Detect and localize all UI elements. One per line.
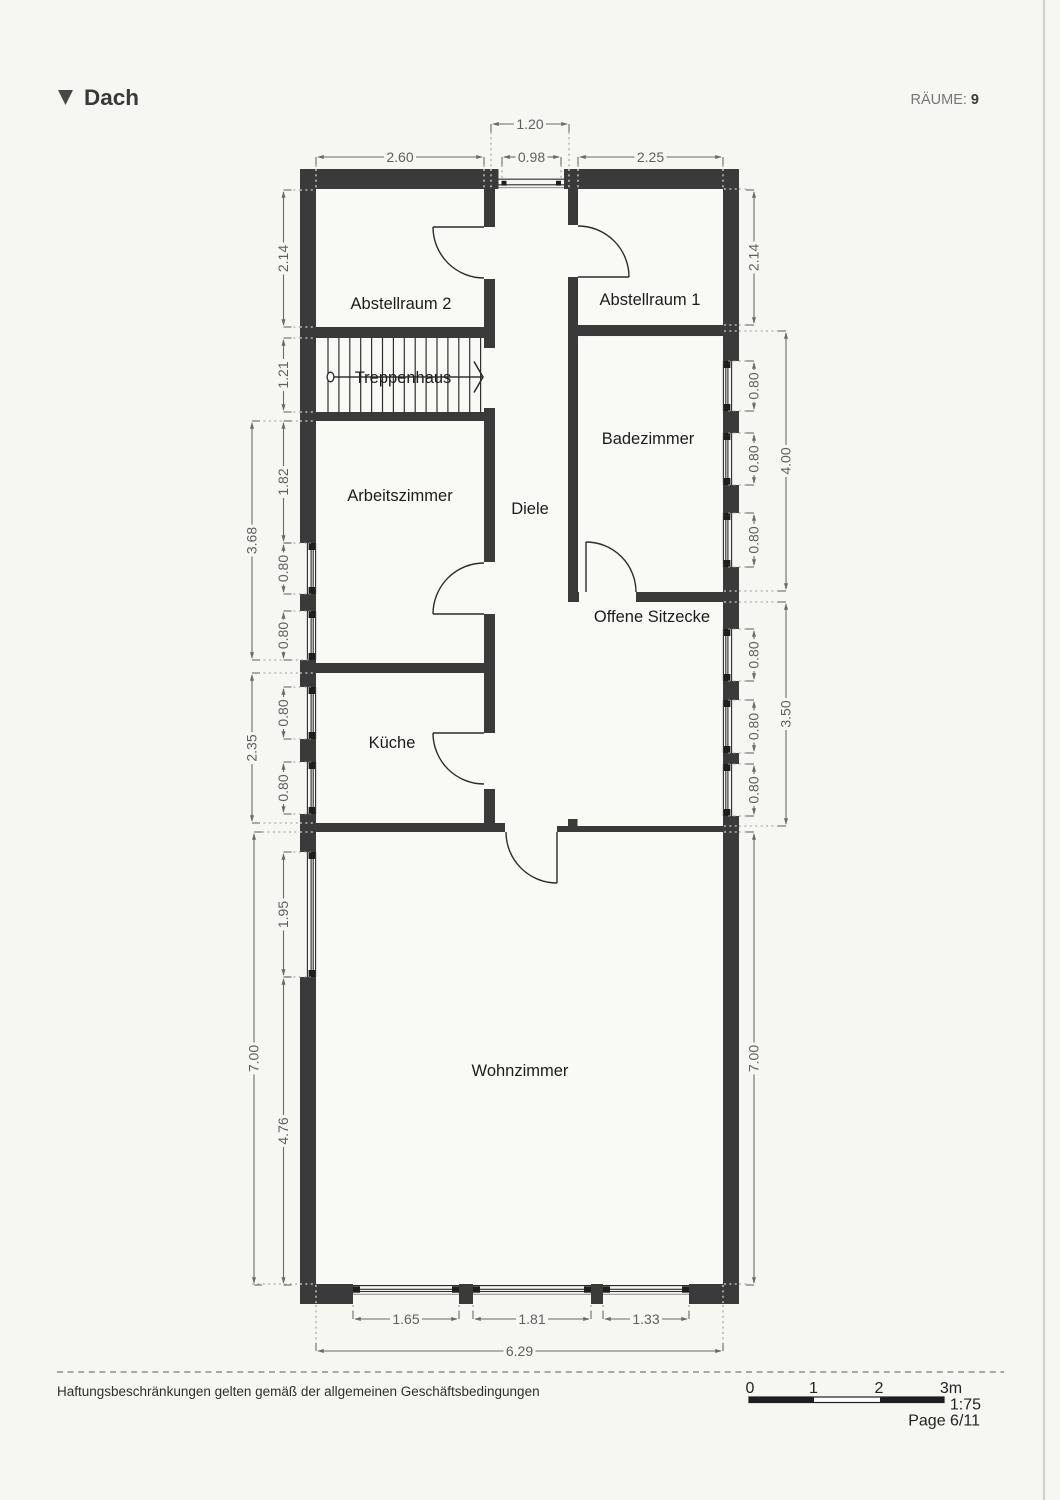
svg-text:6.29: 6.29 <box>506 1343 533 1359</box>
svg-text:Page 6/11: Page 6/11 <box>908 1413 980 1430</box>
svg-text:3.50: 3.50 <box>778 700 794 727</box>
svg-text:1.33: 1.33 <box>632 1311 659 1327</box>
svg-text:Haftungsbeschränkungen gelten: Haftungsbeschränkungen gelten gemäß der … <box>57 1384 540 1399</box>
svg-text:Abstellraum 2: Abstellraum 2 <box>351 295 452 313</box>
svg-text:Treppenhaus: Treppenhaus <box>355 369 452 387</box>
svg-text:Diele: Diele <box>511 500 549 518</box>
svg-text:0.80: 0.80 <box>275 555 291 582</box>
svg-text:4.76: 4.76 <box>275 1117 291 1144</box>
svg-text:0.80: 0.80 <box>746 526 762 553</box>
svg-text:3m: 3m <box>940 1380 962 1397</box>
svg-text:0.98: 0.98 <box>518 149 545 165</box>
svg-text:2.25: 2.25 <box>637 149 664 165</box>
svg-text:3.68: 3.68 <box>244 527 260 554</box>
svg-text:Wohnzimmer: Wohnzimmer <box>472 1062 569 1080</box>
svg-text:Offene Sitzecke: Offene Sitzecke <box>594 608 710 626</box>
svg-text:1.65: 1.65 <box>392 1311 419 1327</box>
svg-text:2.60: 2.60 <box>386 149 413 165</box>
svg-text:2.35: 2.35 <box>244 734 260 761</box>
svg-text:0.80: 0.80 <box>746 641 762 668</box>
svg-text:1.82: 1.82 <box>275 468 291 495</box>
svg-text:Küche: Küche <box>369 734 416 752</box>
svg-text:Badezimmer: Badezimmer <box>602 430 695 448</box>
svg-text:0.80: 0.80 <box>746 713 762 740</box>
svg-text:Arbeitszimmer: Arbeitszimmer <box>347 487 453 505</box>
svg-text:2.14: 2.14 <box>275 245 291 272</box>
svg-text:1.20: 1.20 <box>516 116 543 132</box>
svg-text:0.80: 0.80 <box>746 372 762 399</box>
svg-text:1:75: 1:75 <box>950 1397 981 1414</box>
svg-text:Abstellraum 1: Abstellraum 1 <box>600 291 701 309</box>
svg-text:0: 0 <box>746 1380 755 1397</box>
svg-text:0.80: 0.80 <box>275 774 291 801</box>
svg-text:1.81: 1.81 <box>518 1311 545 1327</box>
svg-text:RÄUME: 9: RÄUME: 9 <box>911 91 980 108</box>
svg-text:7.00: 7.00 <box>246 1045 262 1072</box>
svg-text:0.80: 0.80 <box>275 622 291 649</box>
svg-text:0.80: 0.80 <box>746 445 762 472</box>
svg-text:Dach: Dach <box>84 85 139 110</box>
svg-text:1.95: 1.95 <box>275 901 291 928</box>
svg-text:0.80: 0.80 <box>746 776 762 803</box>
svg-text:1: 1 <box>809 1380 818 1397</box>
svg-text:4.00: 4.00 <box>778 447 794 474</box>
svg-text:0.80: 0.80 <box>275 699 291 726</box>
svg-text:1.21: 1.21 <box>275 361 291 388</box>
svg-text:2.14: 2.14 <box>746 244 762 271</box>
svg-text:2: 2 <box>875 1380 884 1397</box>
svg-text:7.00: 7.00 <box>746 1045 762 1072</box>
